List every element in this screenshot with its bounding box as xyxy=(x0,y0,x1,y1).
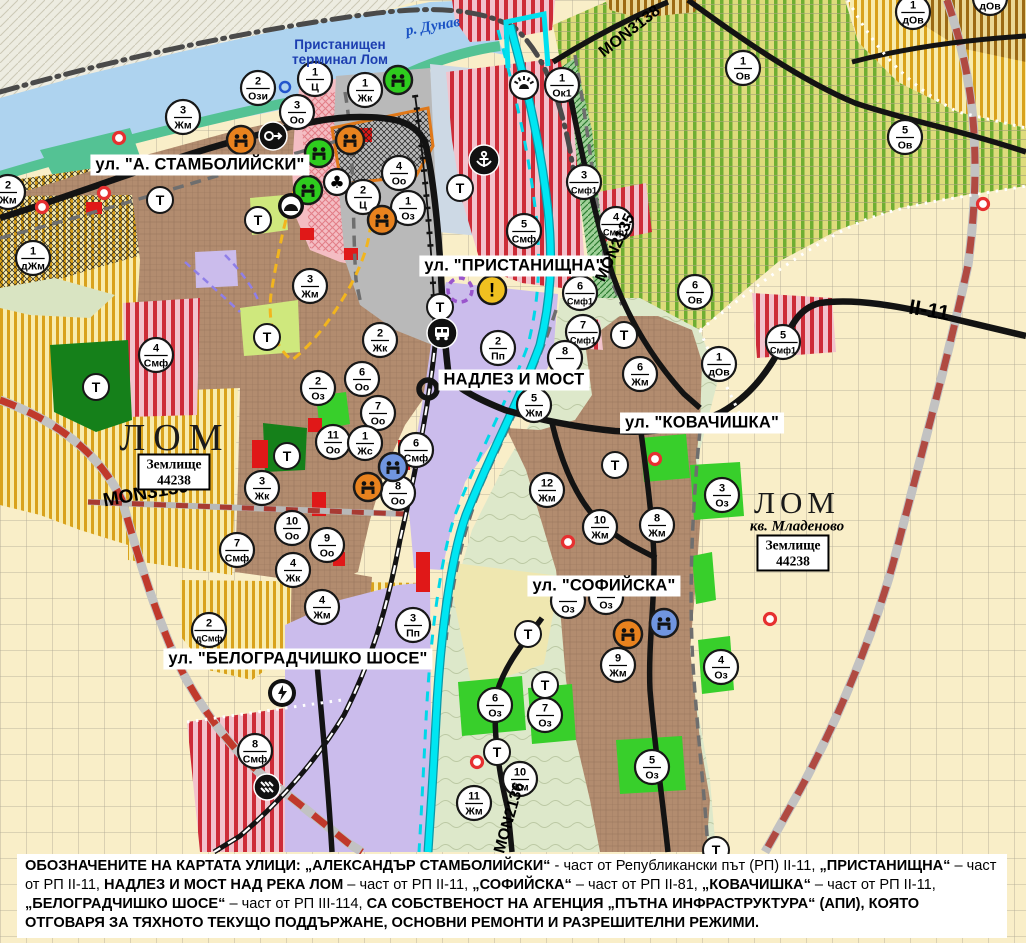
svg-text:10: 10 xyxy=(286,516,298,528)
zone-marker: 10Оо xyxy=(275,511,309,545)
svg-text:Жм: Жм xyxy=(300,289,318,301)
zone-marker: 1дЖм xyxy=(16,241,50,275)
svg-text:Смф: Смф xyxy=(512,234,536,246)
svg-text:Ов: Ов xyxy=(736,71,751,83)
zone-marker: 1Жс xyxy=(348,426,382,460)
svg-text:3: 3 xyxy=(410,613,416,625)
zone-marker: 4Жм xyxy=(305,590,339,624)
svg-text:12: 12 xyxy=(541,478,553,490)
zone-marker: 1Ов xyxy=(726,51,760,85)
zone-marker: 11Оо xyxy=(316,425,350,459)
svg-text:Оз: Оз xyxy=(488,708,501,720)
culture-orange-icon xyxy=(336,126,364,154)
culture-orange-icon xyxy=(614,620,642,648)
zone-marker: 4Жк xyxy=(276,553,310,587)
zone-marker: 2дСмф xyxy=(192,613,226,647)
svg-text:Жм: Жм xyxy=(312,610,330,622)
svg-text:2: 2 xyxy=(495,336,501,348)
svg-text:Оо: Оо xyxy=(371,416,386,428)
bus-icon xyxy=(427,318,457,348)
note-text: – част от РП III-114, xyxy=(225,896,366,912)
zoning-map-screenshot: 2Жм1дЖм3Жм2Ози1Ц1Жк3Оо4Оо2Ц1Оз3Жм1Ок13См… xyxy=(0,0,1026,943)
note-text-bold: „КОВАЧИШКА“ xyxy=(702,877,811,893)
svg-text:Оо: Оо xyxy=(355,382,370,394)
note-text-bold: „ПРИСТАНИЩНА“ xyxy=(819,858,950,874)
zone-marker: 3Смф1 xyxy=(567,165,601,199)
note-text-bold: „СОФИЙСКА“ xyxy=(472,877,572,893)
svg-text:Ози: Ози xyxy=(248,91,268,103)
zone-marker: 8Смф xyxy=(238,734,272,768)
svg-text:Жк: Жк xyxy=(285,573,301,585)
terrain-t-marker: Т xyxy=(274,443,300,469)
svg-text:8: 8 xyxy=(252,739,258,751)
svg-text:Оз: Оз xyxy=(715,498,728,510)
svg-text:Смф1: Смф1 xyxy=(567,297,593,307)
zone-marker: 11Жм xyxy=(457,786,491,820)
culture-orange-icon xyxy=(368,206,396,234)
svg-text:5: 5 xyxy=(902,125,908,137)
svg-text:2: 2 xyxy=(206,618,212,630)
svg-text:4: 4 xyxy=(290,558,297,570)
sun-icon xyxy=(510,71,538,99)
zone-marker: 6Оз xyxy=(478,688,512,722)
warning-icon: ! xyxy=(478,276,506,304)
svg-text:8: 8 xyxy=(395,481,401,493)
zone-marker: 5Смф xyxy=(507,214,541,248)
svg-text:Ок1: Ок1 xyxy=(552,88,571,100)
station-icon xyxy=(254,774,280,800)
svg-text:Оо: Оо xyxy=(392,176,407,188)
red-ring-dot xyxy=(563,537,574,548)
svg-text:5: 5 xyxy=(780,330,786,342)
svg-text:4: 4 xyxy=(153,343,160,355)
svg-text:Оз: Оз xyxy=(311,391,324,403)
culture-orange-icon xyxy=(227,126,255,154)
red-ring-dot xyxy=(99,188,110,199)
svg-text:5: 5 xyxy=(521,219,527,231)
red-ring-dot xyxy=(765,614,776,625)
zone-marker: 8 xyxy=(548,341,582,375)
lightning-icon xyxy=(268,679,296,707)
svg-text:6: 6 xyxy=(692,280,698,292)
zoning-map-canvas[interactable]: 2Жм1дЖм3Жм2Ози1Ц1Жк3Оо4Оо2Ц1Оз3Жм1Ок13См… xyxy=(0,0,1026,943)
svg-text:Т: Т xyxy=(436,299,445,315)
svg-text:7: 7 xyxy=(542,703,548,715)
svg-text:Т: Т xyxy=(620,327,629,343)
zone-marker: 3Оз xyxy=(705,478,739,512)
club-icon: ♣ xyxy=(324,169,350,195)
zone-marker: 10Жм xyxy=(583,510,617,544)
svg-text:3: 3 xyxy=(719,483,725,495)
terrain-t-marker: Т xyxy=(602,452,628,478)
zone-marker: 4Оз xyxy=(704,650,738,684)
svg-text:Оо: Оо xyxy=(290,115,305,127)
svg-text:4: 4 xyxy=(396,161,403,173)
note-text: – част от РП II-11, xyxy=(343,877,472,893)
svg-text:5: 5 xyxy=(649,755,655,767)
svg-text:Оз: Оз xyxy=(645,770,658,782)
svg-text:Жм: Жм xyxy=(537,493,555,505)
svg-text:Ц: Ц xyxy=(359,200,367,212)
svg-text:3: 3 xyxy=(180,105,186,117)
zone-marker: 3Оо xyxy=(280,95,314,129)
note-text-bold: ОБОЗНАЧЕНИТЕ НА КАРТАТА УЛИЦИ: „АЛЕКСАНД… xyxy=(25,858,550,874)
zone-marker: 7Оо xyxy=(361,396,395,430)
svg-text:Т: Т xyxy=(283,448,292,464)
zone-marker: 3Жм xyxy=(293,269,327,303)
svg-text:Т: Т xyxy=(254,212,263,228)
svg-text:дОв: дОв xyxy=(979,1,1001,13)
zone-marker: 9Оо xyxy=(310,528,344,562)
zone-marker: 5Жм xyxy=(517,388,551,422)
svg-text:7: 7 xyxy=(580,320,586,332)
zone-marker: 6Жм xyxy=(623,357,657,391)
svg-text:11: 11 xyxy=(327,430,339,442)
svg-text:6: 6 xyxy=(577,281,583,293)
svg-text:1: 1 xyxy=(312,67,318,79)
zone-marker: 7Смф xyxy=(220,533,254,567)
svg-text:2: 2 xyxy=(315,376,321,388)
svg-text:Смф: Смф xyxy=(144,358,168,370)
svg-text:4: 4 xyxy=(718,655,725,667)
svg-text:Жм: Жм xyxy=(630,377,648,389)
svg-text:4: 4 xyxy=(319,595,326,607)
svg-text:6: 6 xyxy=(359,367,365,379)
zone-marker: 2Жм xyxy=(0,175,25,209)
legend-note: ОБОЗНАЧЕНИТЕ НА КАРТАТА УЛИЦИ: „АЛЕКСАНД… xyxy=(17,854,1007,938)
svg-text:1: 1 xyxy=(740,56,746,68)
zone-shapes-layer xyxy=(0,0,1026,943)
terrain-t-marker: Т xyxy=(83,374,109,400)
culture-orange-icon xyxy=(354,473,382,501)
zone-marker: 8Жм xyxy=(640,508,674,542)
svg-text:2: 2 xyxy=(255,76,261,88)
svg-text:3: 3 xyxy=(581,170,587,182)
zone-marker: 1Ок1 xyxy=(545,68,579,102)
zone-marker: Оз xyxy=(589,580,623,614)
zone-marker: 1Жк xyxy=(348,73,382,107)
svg-text:1: 1 xyxy=(362,78,368,90)
svg-text:1: 1 xyxy=(716,352,722,364)
zone-marker: 1Ц xyxy=(298,62,332,96)
svg-text:Жм: Жм xyxy=(590,530,608,542)
zone-marker: 6Смф1 xyxy=(563,276,597,310)
svg-text:11: 11 xyxy=(468,791,480,803)
svg-text:Оо: Оо xyxy=(285,531,300,543)
zone-marker: Оз xyxy=(551,584,585,618)
svg-text:Т: Т xyxy=(156,192,165,208)
red-ring-dot xyxy=(37,202,48,213)
svg-text:Оз: Оз xyxy=(401,211,414,223)
svg-text:!: ! xyxy=(489,281,495,302)
svg-text:Ов: Ов xyxy=(898,140,913,152)
svg-text:Оз: Оз xyxy=(538,718,551,730)
svg-text:1: 1 xyxy=(910,0,916,12)
svg-text:Оз: Оз xyxy=(561,604,574,616)
svg-text:Т: Т xyxy=(456,180,465,196)
culture-green-icon xyxy=(384,66,412,94)
red-ring-dot xyxy=(114,133,125,144)
zone-marker: 5Смф1 xyxy=(766,325,800,359)
svg-text:Оз: Оз xyxy=(714,670,727,682)
svg-text:Жм: Жм xyxy=(464,806,482,818)
svg-text:Оо: Оо xyxy=(391,496,406,508)
culture-blue-icon xyxy=(379,453,407,481)
svg-text:Смф: Смф xyxy=(243,754,267,766)
svg-text:дЖм: дЖм xyxy=(21,261,45,273)
zone-marker: 6Оо xyxy=(345,362,379,396)
zone-marker: 4Смф xyxy=(139,338,173,372)
note-text: - част от Републикански път (РП) II-11, xyxy=(550,858,819,874)
svg-text:10: 10 xyxy=(594,515,606,527)
svg-text:Ц: Ц xyxy=(311,82,319,94)
svg-text:2: 2 xyxy=(360,185,366,197)
svg-text:7: 7 xyxy=(375,401,381,413)
svg-text:Т: Т xyxy=(263,329,272,345)
svg-text:10: 10 xyxy=(514,767,526,779)
svg-text:Пп: Пп xyxy=(491,351,505,363)
anchor-icon xyxy=(469,145,499,175)
svg-text:дОв: дОв xyxy=(902,15,924,27)
svg-text:дСмф: дСмф xyxy=(196,634,223,644)
svg-text:♣: ♣ xyxy=(329,173,344,193)
svg-text:Смф: Смф xyxy=(225,553,249,565)
zone-marker: 9Жм xyxy=(601,648,635,682)
zone-marker: 5Ов xyxy=(888,120,922,154)
svg-text:Жм: Жм xyxy=(0,195,17,207)
svg-text:Жк: Жк xyxy=(372,343,388,355)
terrain-t-marker: Т xyxy=(245,207,271,233)
svg-text:дОв: дОв xyxy=(708,367,730,379)
terrain-t-marker: Т xyxy=(254,324,280,350)
svg-text:Жм: Жм xyxy=(510,782,528,794)
svg-text:Жм: Жм xyxy=(524,408,542,420)
terrain-t-marker: Т xyxy=(532,672,558,698)
svg-text:7: 7 xyxy=(234,538,240,550)
svg-text:Жк: Жк xyxy=(254,491,270,503)
zone-marker: 4Смф1 xyxy=(599,207,633,241)
svg-text:Пп: Пп xyxy=(406,628,420,640)
svg-text:Т: Т xyxy=(524,626,533,642)
terrain-t-marker: Т xyxy=(427,294,453,320)
svg-text:3: 3 xyxy=(307,274,313,286)
svg-text:1: 1 xyxy=(30,246,36,258)
zone-marker: 1дОв xyxy=(702,347,736,381)
zone-marker: 10Жм xyxy=(503,762,537,796)
zone-marker: 2Пп xyxy=(481,331,515,365)
svg-text:2: 2 xyxy=(377,328,383,340)
svg-text:Т: Т xyxy=(92,379,101,395)
zone-marker: 7Оз xyxy=(528,698,562,732)
culture-green-icon xyxy=(305,139,333,167)
svg-text:Оз: Оз xyxy=(599,600,612,612)
zone-marker: 6Ов xyxy=(678,275,712,309)
note-text-bold: „БЕЛОГРАДЧИШКО ШОСЕ“ xyxy=(25,896,225,912)
zone-marker: 12Жм xyxy=(530,473,564,507)
zone-marker: 3Жк xyxy=(245,471,279,505)
terrain-t-marker: Т xyxy=(447,175,473,201)
svg-text:Оо: Оо xyxy=(326,445,341,457)
terrain-t-marker: Т xyxy=(611,322,637,348)
svg-text:3: 3 xyxy=(259,476,265,488)
svg-text:Смф1: Смф1 xyxy=(603,228,629,238)
terrain-t-marker: Т xyxy=(484,739,510,765)
svg-text:8: 8 xyxy=(654,513,660,525)
svg-text:6: 6 xyxy=(413,438,419,450)
zone-marker: 4Оо xyxy=(382,156,416,190)
svg-text:Т: Т xyxy=(611,457,620,473)
svg-text:Ов: Ов xyxy=(688,295,703,307)
svg-text:1: 1 xyxy=(405,196,411,208)
mound-icon xyxy=(278,193,304,219)
note-text: – част от РП II-11, xyxy=(811,877,936,893)
note-text-bold: НАДЛЕЗ И МОСТ НАД РЕКА ЛОМ xyxy=(104,877,343,893)
svg-text:6: 6 xyxy=(637,362,643,374)
svg-text:Т: Т xyxy=(541,677,550,693)
svg-text:4: 4 xyxy=(613,212,620,224)
zone-marker: 5Оз xyxy=(635,750,669,784)
svg-text:6: 6 xyxy=(492,693,498,705)
arrow-icon xyxy=(259,122,287,150)
terrain-t-marker: Т xyxy=(147,187,173,213)
svg-text:8: 8 xyxy=(562,346,568,358)
culture-blue-icon xyxy=(650,609,678,637)
svg-text:5: 5 xyxy=(531,393,537,405)
svg-text:Жм: Жм xyxy=(173,120,191,132)
svg-text:Жс: Жс xyxy=(356,446,372,458)
red-ring-dot xyxy=(978,199,989,210)
red-ring-dot xyxy=(650,454,661,465)
zone-marker: 3Пп xyxy=(396,608,430,642)
svg-text:9: 9 xyxy=(324,533,330,545)
note-text: – част от РП II-81, xyxy=(572,877,702,893)
svg-text:Смф1: Смф1 xyxy=(571,186,597,196)
svg-text:Т: Т xyxy=(493,744,502,760)
red-ring-dot xyxy=(472,757,483,768)
svg-text:Оо: Оо xyxy=(320,548,335,560)
zone-marker: 3Жм xyxy=(166,100,200,134)
svg-text:Жм: Жм xyxy=(608,668,626,680)
svg-text:2: 2 xyxy=(5,180,11,192)
svg-text:Жк: Жк xyxy=(357,93,373,105)
zone-marker: 2Жк xyxy=(363,323,397,357)
terrain-t-marker: Т xyxy=(515,621,541,647)
svg-text:Смф1: Смф1 xyxy=(770,346,796,356)
svg-text:Жм: Жм xyxy=(647,528,665,540)
zone-marker: 2Ози xyxy=(241,71,275,105)
svg-text:1: 1 xyxy=(362,431,368,443)
zone-marker: 2Оз xyxy=(301,371,335,405)
svg-text:9: 9 xyxy=(615,653,621,665)
zone-marker: 1дОв xyxy=(896,0,930,29)
svg-text:1: 1 xyxy=(559,73,565,85)
svg-text:3: 3 xyxy=(294,100,300,112)
